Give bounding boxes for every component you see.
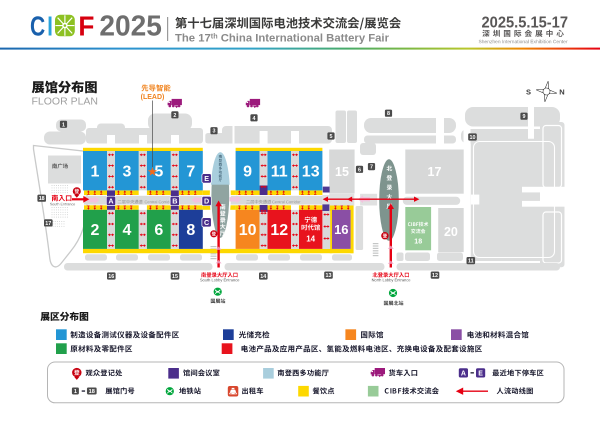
svg-text:11: 11 <box>468 259 474 265</box>
svg-text:A: A <box>461 370 466 377</box>
svg-text:B: B <box>172 197 177 206</box>
svg-text:N: N <box>559 88 564 97</box>
svg-text:(LEAD): (LEAD) <box>141 94 165 101</box>
svg-text:I: I <box>47 11 53 42</box>
svg-text:15: 15 <box>335 165 349 179</box>
svg-text:7: 7 <box>370 165 373 171</box>
svg-text:13: 13 <box>326 273 332 279</box>
svg-text:5: 5 <box>154 163 163 180</box>
svg-text:F: F <box>78 11 94 42</box>
svg-text:The 17th China International B: The 17th China International Battery Fai… <box>175 32 390 45</box>
svg-text:8: 8 <box>186 222 195 239</box>
svg-text:2025: 2025 <box>99 11 162 43</box>
svg-text:1: 1 <box>62 122 65 128</box>
svg-text:5: 5 <box>330 134 333 140</box>
svg-text:18: 18 <box>414 239 422 246</box>
svg-text:16: 16 <box>108 274 114 280</box>
svg-text:6: 6 <box>154 222 163 239</box>
svg-text:12: 12 <box>270 222 288 239</box>
svg-text:1: 1 <box>74 389 77 395</box>
svg-text:13: 13 <box>302 163 320 180</box>
svg-text:18: 18 <box>39 196 45 202</box>
svg-text:14: 14 <box>260 274 266 280</box>
svg-text:17: 17 <box>428 165 442 179</box>
svg-text:D: D <box>204 197 209 206</box>
svg-text:18: 18 <box>89 389 95 395</box>
svg-text:C: C <box>204 218 209 227</box>
svg-text:2: 2 <box>173 113 176 119</box>
svg-text:C: C <box>30 11 45 42</box>
svg-text:12: 12 <box>432 273 438 279</box>
svg-text:4: 4 <box>253 116 256 122</box>
svg-text:10: 10 <box>470 135 476 141</box>
svg-text:2025.5.15-17: 2025.5.15-17 <box>482 15 569 32</box>
svg-text:7: 7 <box>186 163 195 180</box>
svg-text:3: 3 <box>213 129 216 135</box>
svg-text:3: 3 <box>122 163 131 180</box>
svg-text:1: 1 <box>91 163 100 180</box>
svg-text:4: 4 <box>122 222 131 239</box>
svg-text:S: S <box>526 88 531 97</box>
svg-text:11: 11 <box>271 163 288 180</box>
svg-text:E: E <box>478 370 483 377</box>
svg-text:9: 9 <box>523 114 526 120</box>
svg-text:8: 8 <box>387 111 390 117</box>
svg-text:9: 9 <box>243 163 252 180</box>
svg-text:2: 2 <box>91 222 100 239</box>
svg-text:E: E <box>204 174 209 183</box>
svg-text:17: 17 <box>45 221 51 227</box>
svg-text:14: 14 <box>306 235 315 244</box>
svg-text:FLOOR PLAN: FLOOR PLAN <box>32 95 99 107</box>
svg-text:6: 6 <box>358 167 361 173</box>
svg-text:15: 15 <box>172 274 178 280</box>
svg-text:20: 20 <box>444 225 458 239</box>
svg-text:10: 10 <box>239 222 257 239</box>
svg-text:A: A <box>108 197 113 206</box>
svg-text:16: 16 <box>334 222 348 237</box>
